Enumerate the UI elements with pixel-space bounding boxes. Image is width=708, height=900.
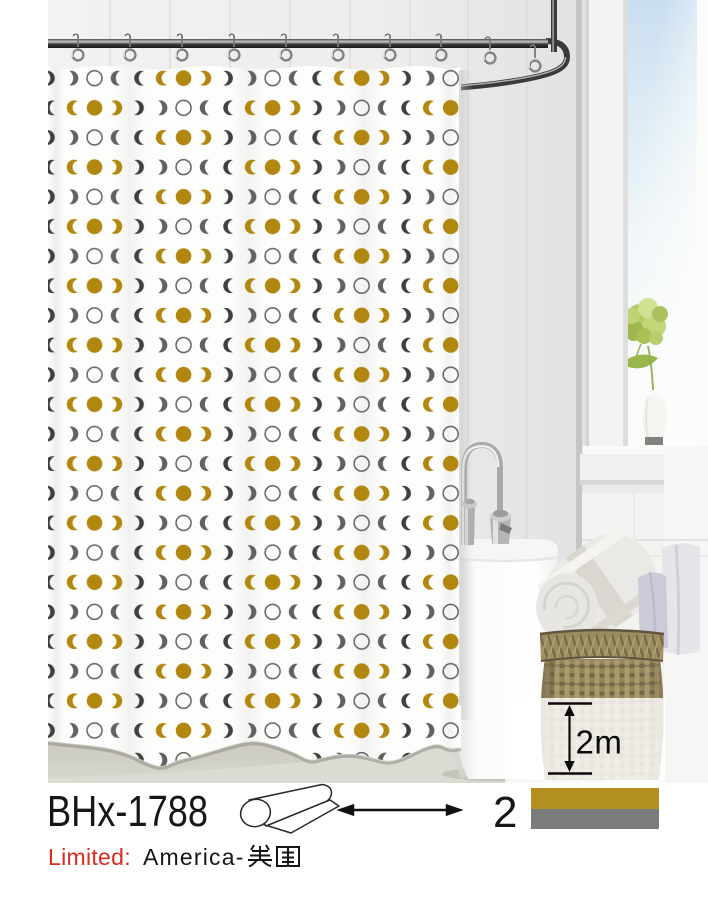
svg-text:2m: 2m <box>576 724 623 761</box>
svg-text:America-: America- <box>143 844 245 870</box>
svg-text:Limited:: Limited: <box>48 844 131 870</box>
svg-text:BHx-1788: BHx-1788 <box>47 787 208 836</box>
svg-text:2: 2 <box>493 788 517 837</box>
